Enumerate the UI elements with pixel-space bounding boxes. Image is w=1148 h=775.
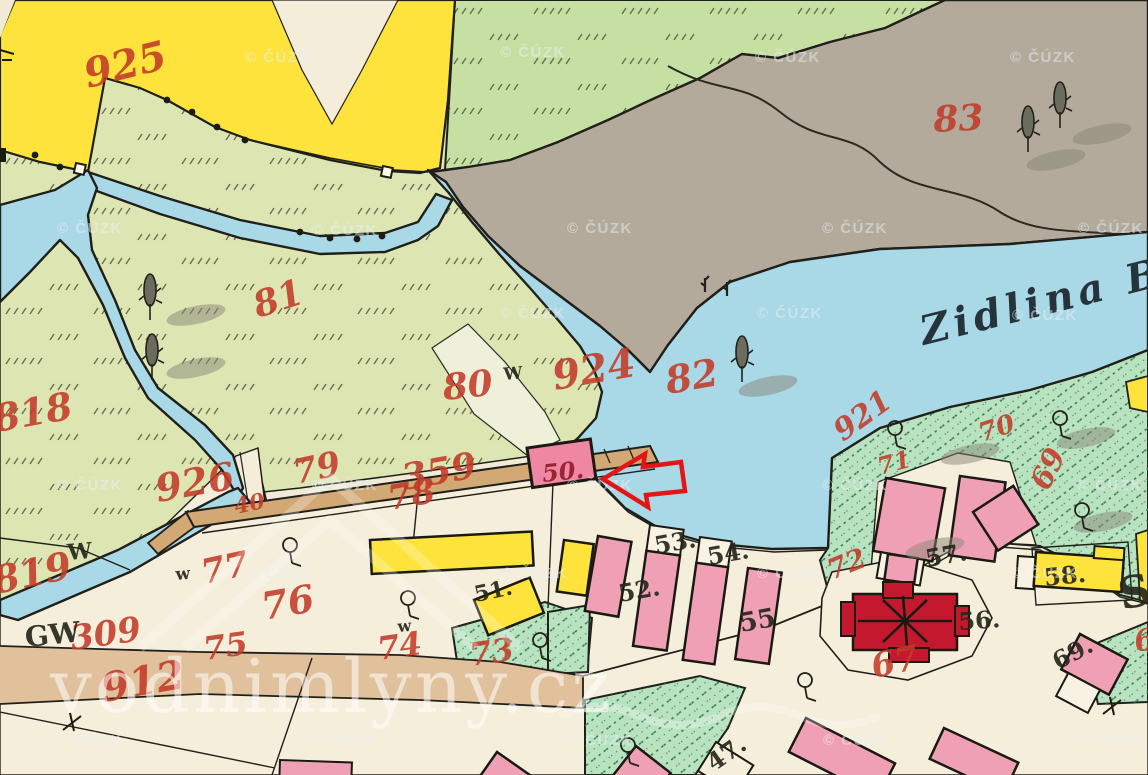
- copyright-watermark: © ČÚZK: [1010, 48, 1076, 66]
- copyright-watermark: © ČÚZK: [757, 304, 823, 322]
- boundary-stone-dot: [164, 97, 171, 104]
- house-label-55: 55: [737, 603, 778, 639]
- copyright-watermark: © ČÚZK: [1077, 476, 1143, 494]
- copyright-watermark: © ČÚZK: [567, 731, 633, 749]
- building-58-wing: [1094, 546, 1125, 560]
- copyright-watermark: © ČÚZK: [57, 219, 123, 237]
- edge-mark-2: [0, 148, 6, 162]
- historical-cadastral-map-canvas[interactable]: 9258381818819809248292170716972926793597…: [0, 0, 1148, 775]
- copyright-watermark: © ČÚZK: [755, 48, 821, 66]
- parcel-label-80: 80: [440, 362, 495, 409]
- site-watermark-text: vodnimlyny.cz: [49, 644, 613, 730]
- map-image: 9258381818819809248292170716972926793597…: [0, 0, 1148, 775]
- house-label-W: W: [65, 538, 93, 566]
- copyright-watermark: © ČÚZK: [822, 219, 888, 237]
- copyright-watermark: © ČÚZK: [312, 731, 378, 749]
- copyright-watermark: © ČÚZK: [1012, 306, 1078, 324]
- copyright-watermark: © ČÚZK: [567, 219, 633, 237]
- building-bottom-e: [279, 760, 352, 775]
- building-72-small: [884, 554, 917, 584]
- boundary-stone-dot: [57, 164, 64, 171]
- copyright-watermark: © ČÚZK: [500, 304, 566, 322]
- sluice-gate-icon: [381, 166, 393, 178]
- copyright-watermark: © ČÚZK: [312, 476, 378, 494]
- boundary-stone-dot: [379, 233, 386, 240]
- sluice-gate-icon: [74, 163, 86, 175]
- copyright-watermark: © ČÚZK: [502, 564, 568, 582]
- copyright-watermark: © ČÚZK: [1078, 219, 1144, 237]
- boundary-stone-dot: [189, 109, 196, 116]
- parcel-label-76: 76: [258, 575, 318, 629]
- parcel-label-82: 82: [661, 349, 722, 403]
- house-label-W: W: [502, 363, 525, 385]
- copyright-watermark: © ČÚZK: [312, 221, 378, 239]
- house-label-56: 56.: [957, 604, 1001, 636]
- boundary-stone-dot: [242, 137, 249, 144]
- boundary-stone-dot: [32, 152, 39, 159]
- copyright-watermark: © ČÚZK: [57, 476, 123, 494]
- copyright-watermark: © ČÚZK: [1078, 731, 1144, 749]
- copyright-watermark: © ČÚZK: [500, 43, 566, 61]
- parcel-label-83: 83: [931, 96, 984, 141]
- copyright-watermark: © ČÚZK: [245, 48, 311, 66]
- boundary-stone-dot: [297, 229, 304, 236]
- copyright-watermark: © ČÚZK: [823, 731, 889, 749]
- copyright-watermark: © ČÚZK: [822, 476, 888, 494]
- copyright-watermark: © ČÚZK: [57, 731, 123, 749]
- copyright-watermark: © ČÚZK: [757, 564, 823, 582]
- boundary-stone-dot: [214, 124, 221, 131]
- parcel-label-78: 78: [385, 471, 439, 519]
- house-label-w: w: [174, 564, 192, 585]
- copyright-watermark: © ČÚZK: [247, 564, 313, 582]
- copyright-watermark: © ČÚZK: [1012, 564, 1078, 582]
- house-label-w: w: [396, 616, 414, 636]
